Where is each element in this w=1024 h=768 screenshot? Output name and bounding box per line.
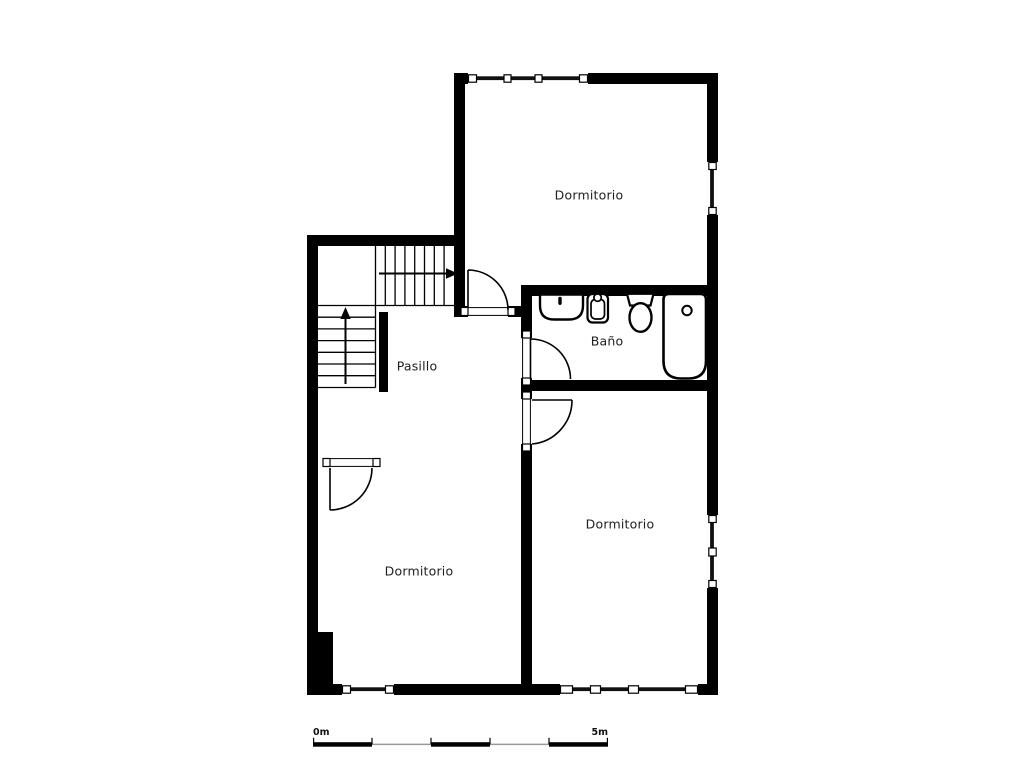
wall-hallway-top bbox=[307, 235, 465, 246]
arrow-right-icon bbox=[379, 268, 458, 278]
room-label-bedroom-left: Dormitorio bbox=[385, 564, 454, 579]
scale-end-label: 5m bbox=[585, 727, 608, 738]
door-arc bbox=[532, 400, 572, 444]
wall-bathroom-bottom bbox=[521, 380, 718, 391]
floor-plan-drawing bbox=[0, 0, 1024, 768]
window-top bbox=[468, 73, 588, 84]
drain-icon bbox=[682, 306, 691, 315]
toilet-icon bbox=[627, 294, 654, 332]
door-arc bbox=[531, 339, 571, 379]
bathtub-icon bbox=[664, 294, 707, 379]
door-bathroom bbox=[521, 331, 571, 385]
window-right-lower bbox=[707, 515, 718, 588]
room-label-hallway: Pasillo bbox=[397, 358, 438, 373]
walls bbox=[307, 73, 718, 695]
window-bottom-left bbox=[342, 684, 394, 695]
door-bedroom-top bbox=[461, 270, 515, 317]
stair-rail-wall bbox=[379, 312, 388, 392]
window-bottom-right bbox=[560, 684, 698, 695]
wall-left bbox=[307, 235, 318, 695]
room-label-bedroom-top: Dormitorio bbox=[555, 188, 624, 203]
arrow-up-icon bbox=[340, 307, 350, 384]
floor-plan-page: Dormitorio Baño Pasillo Dormitorio Dormi… bbox=[0, 0, 1024, 768]
scale-start-label: 0m bbox=[313, 727, 330, 738]
window-right-upper bbox=[707, 162, 718, 215]
door-arc bbox=[468, 270, 508, 310]
wall-bedroom-top-left bbox=[454, 73, 465, 317]
room-label-bathroom: Baño bbox=[591, 334, 624, 349]
scale-bar bbox=[313, 738, 608, 747]
door-arc bbox=[330, 468, 372, 510]
room-label-bedroom-right: Dormitorio bbox=[586, 516, 655, 531]
door-bedroom-left bbox=[323, 457, 380, 510]
sink-icon bbox=[540, 295, 583, 320]
bidet-icon bbox=[588, 290, 609, 323]
door-bedroom-right bbox=[521, 392, 572, 451]
column bbox=[318, 632, 333, 684]
